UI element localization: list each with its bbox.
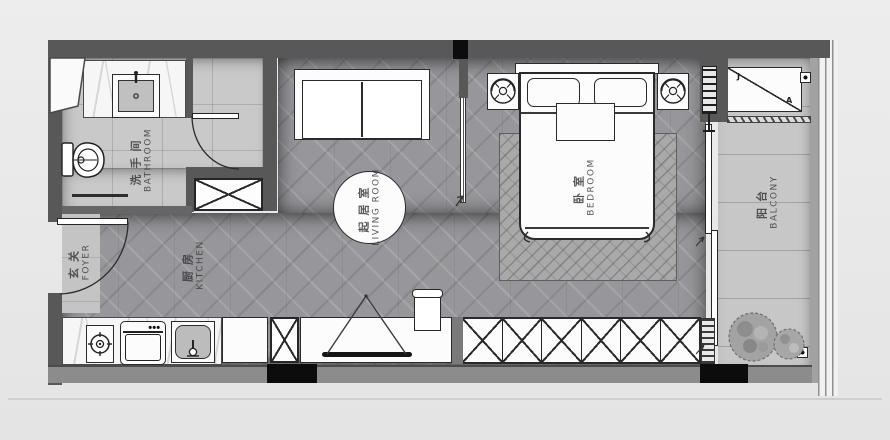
- washer-control-panel: [123, 323, 163, 333]
- room-label-balcony-zh: 阳台: [756, 175, 770, 228]
- wardrobe-end-hatch: [701, 318, 715, 364]
- vanity-end-wall: [186, 58, 193, 118]
- room-label-kitchen-en: KITCHEN: [195, 240, 206, 290]
- room-label-foyer-en: FOYER: [81, 244, 92, 281]
- tall-cabinet: [270, 317, 299, 363]
- room-label-bathroom: 洗手间 BATHROOM: [130, 128, 155, 192]
- bathroom-appliance-cabinet: [194, 178, 263, 211]
- cabinet-mark-right: A: [786, 96, 792, 105]
- kitchen-sink: [171, 321, 215, 363]
- balcony-threshold: [727, 116, 811, 123]
- wardrobe-section: [581, 319, 621, 362]
- wardrobe: [461, 317, 701, 364]
- vanity-basin-inner: [118, 80, 154, 112]
- room-label-kitchen-zh: 厨房: [182, 240, 196, 290]
- washing-machine: [120, 321, 166, 365]
- washer-door: [125, 334, 161, 361]
- wardrobe-section: [463, 319, 502, 362]
- nightstand-right: [657, 73, 689, 110]
- room-label-balcony: 阳台 BALCONY: [756, 175, 781, 228]
- cooktop: [86, 325, 114, 363]
- room-label-foyer-zh: 玄关: [68, 244, 82, 281]
- room-label-living-room-en: LIVING ROOM: [371, 168, 382, 246]
- bed-foot-line: [525, 227, 649, 229]
- bed-blanket-fold: [556, 103, 615, 141]
- room-label-kitchen: 厨房 KITCHEN: [182, 240, 207, 290]
- bathroom-foyer-wall: [62, 206, 192, 214]
- drying-rack: [702, 66, 717, 114]
- room-label-foyer: 玄关 FOYER: [68, 244, 93, 281]
- wardrobe-section: [502, 319, 542, 362]
- bottom-column-left: [267, 364, 317, 383]
- bathroom-door-leaf: [192, 113, 239, 119]
- floor-drain-bottom: [797, 347, 808, 358]
- bathroom-door-wall: [192, 167, 263, 178]
- balcony-window-railing: [818, 40, 838, 396]
- room-label-living-room-zh: 起居室: [358, 168, 372, 246]
- room-label-balcony-en: BALCONY: [769, 175, 780, 228]
- chair: [412, 289, 443, 331]
- towel-rail: [72, 194, 128, 197]
- balcony-sliding-door-panel-1: [705, 124, 712, 234]
- sliding-partition: [460, 97, 466, 203]
- room-label-bedroom-zh: 卧室: [573, 158, 587, 215]
- wardrobe-section: [620, 319, 660, 362]
- sink-basin: [175, 325, 211, 359]
- bathroom-right-wall: [263, 40, 277, 211]
- cabinet-mark-left: J: [737, 72, 740, 81]
- room-label-living-room: 起居室 LIVING ROOM: [358, 168, 383, 246]
- room-label-bedroom: 卧室 BEDROOM: [573, 158, 598, 215]
- floor-plan: J A: [0, 0, 890, 440]
- base-cabinet: [222, 317, 268, 363]
- entry-door-leaf: [57, 218, 128, 225]
- top-wall-column: [453, 40, 468, 59]
- tv-screen: [322, 352, 412, 357]
- bathroom-floor-left: [62, 168, 192, 208]
- drying-rack-pole: [708, 114, 710, 130]
- chair-seat: [414, 297, 441, 331]
- wardrobe-section: [660, 319, 700, 362]
- floor-drain-top: [800, 72, 811, 83]
- sofa-seat-divider: [361, 82, 363, 137]
- sofa: [294, 69, 430, 140]
- partition-wall-spur: [459, 58, 468, 98]
- room-label-bathroom-zh: 洗手间: [130, 128, 144, 192]
- partition-track-line: [463, 98, 464, 202]
- drying-rack-foot: [703, 130, 715, 132]
- console-wardrobe-stub: [452, 317, 463, 364]
- balcony-outer-wall: [810, 40, 818, 383]
- bottom-column-right: [700, 364, 748, 383]
- room-label-bedroom-en: BEDROOM: [586, 158, 597, 215]
- room-label-bathroom-en: BATHROOM: [143, 128, 154, 192]
- drawing-border-shadow: [8, 398, 882, 400]
- nightstand-left: [487, 73, 519, 110]
- bottom-wall: [48, 365, 812, 383]
- wardrobe-section: [541, 319, 581, 362]
- left-wall-upper: [48, 40, 62, 222]
